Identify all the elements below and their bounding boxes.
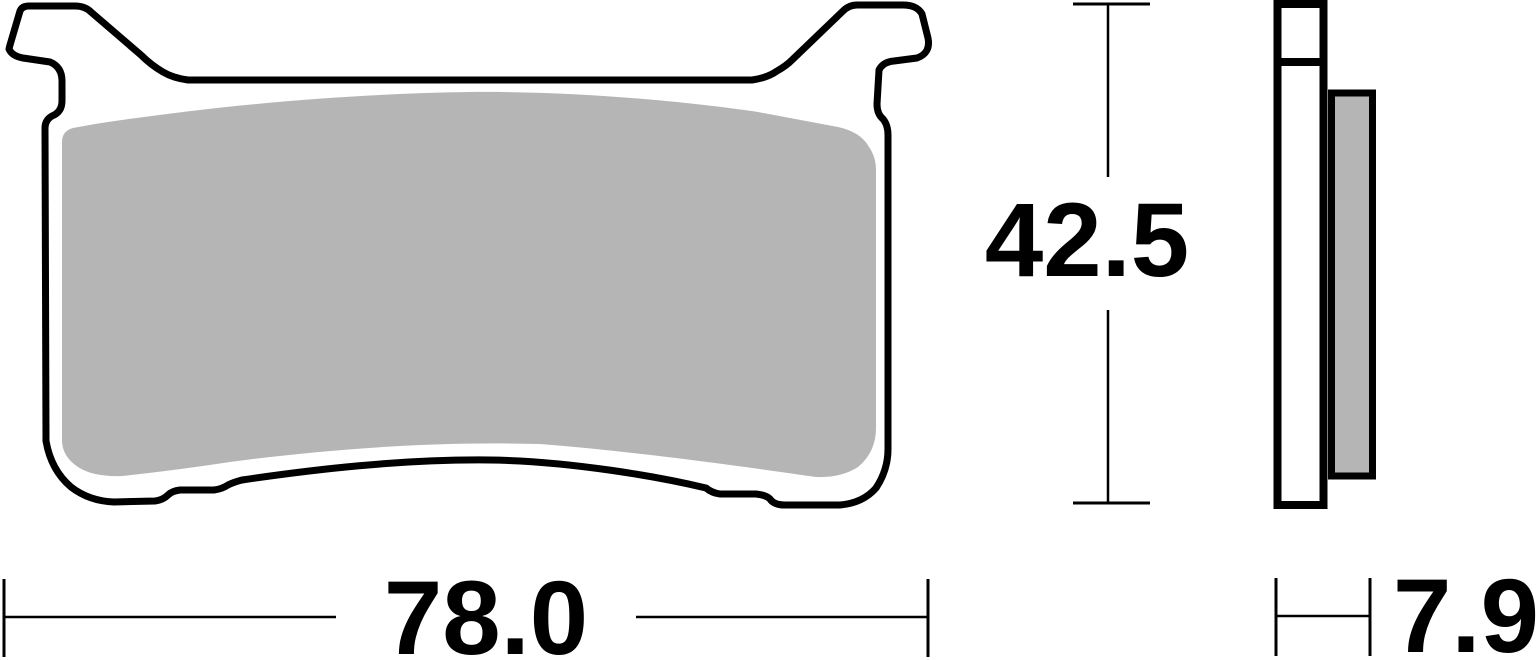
brake-pad-technical-drawing: 78.0 42.5 7.9 <box>0 0 1536 660</box>
width-dimension-label: 78.0 <box>384 560 588 660</box>
side-view <box>1277 4 1373 505</box>
height-dimension-label: 42.5 <box>985 182 1189 299</box>
dimension-thickness: 7.9 <box>1276 558 1536 660</box>
thickness-dimension-label: 7.9 <box>1393 558 1536 660</box>
side-backplate <box>1278 4 1324 505</box>
drawing-canvas: 78.0 42.5 7.9 <box>0 0 1536 660</box>
front-friction-material <box>62 92 876 477</box>
front-view <box>9 5 929 505</box>
dimension-height: 42.5 <box>985 4 1189 503</box>
dimension-width: 78.0 <box>4 560 928 660</box>
side-friction-material <box>1332 93 1373 476</box>
